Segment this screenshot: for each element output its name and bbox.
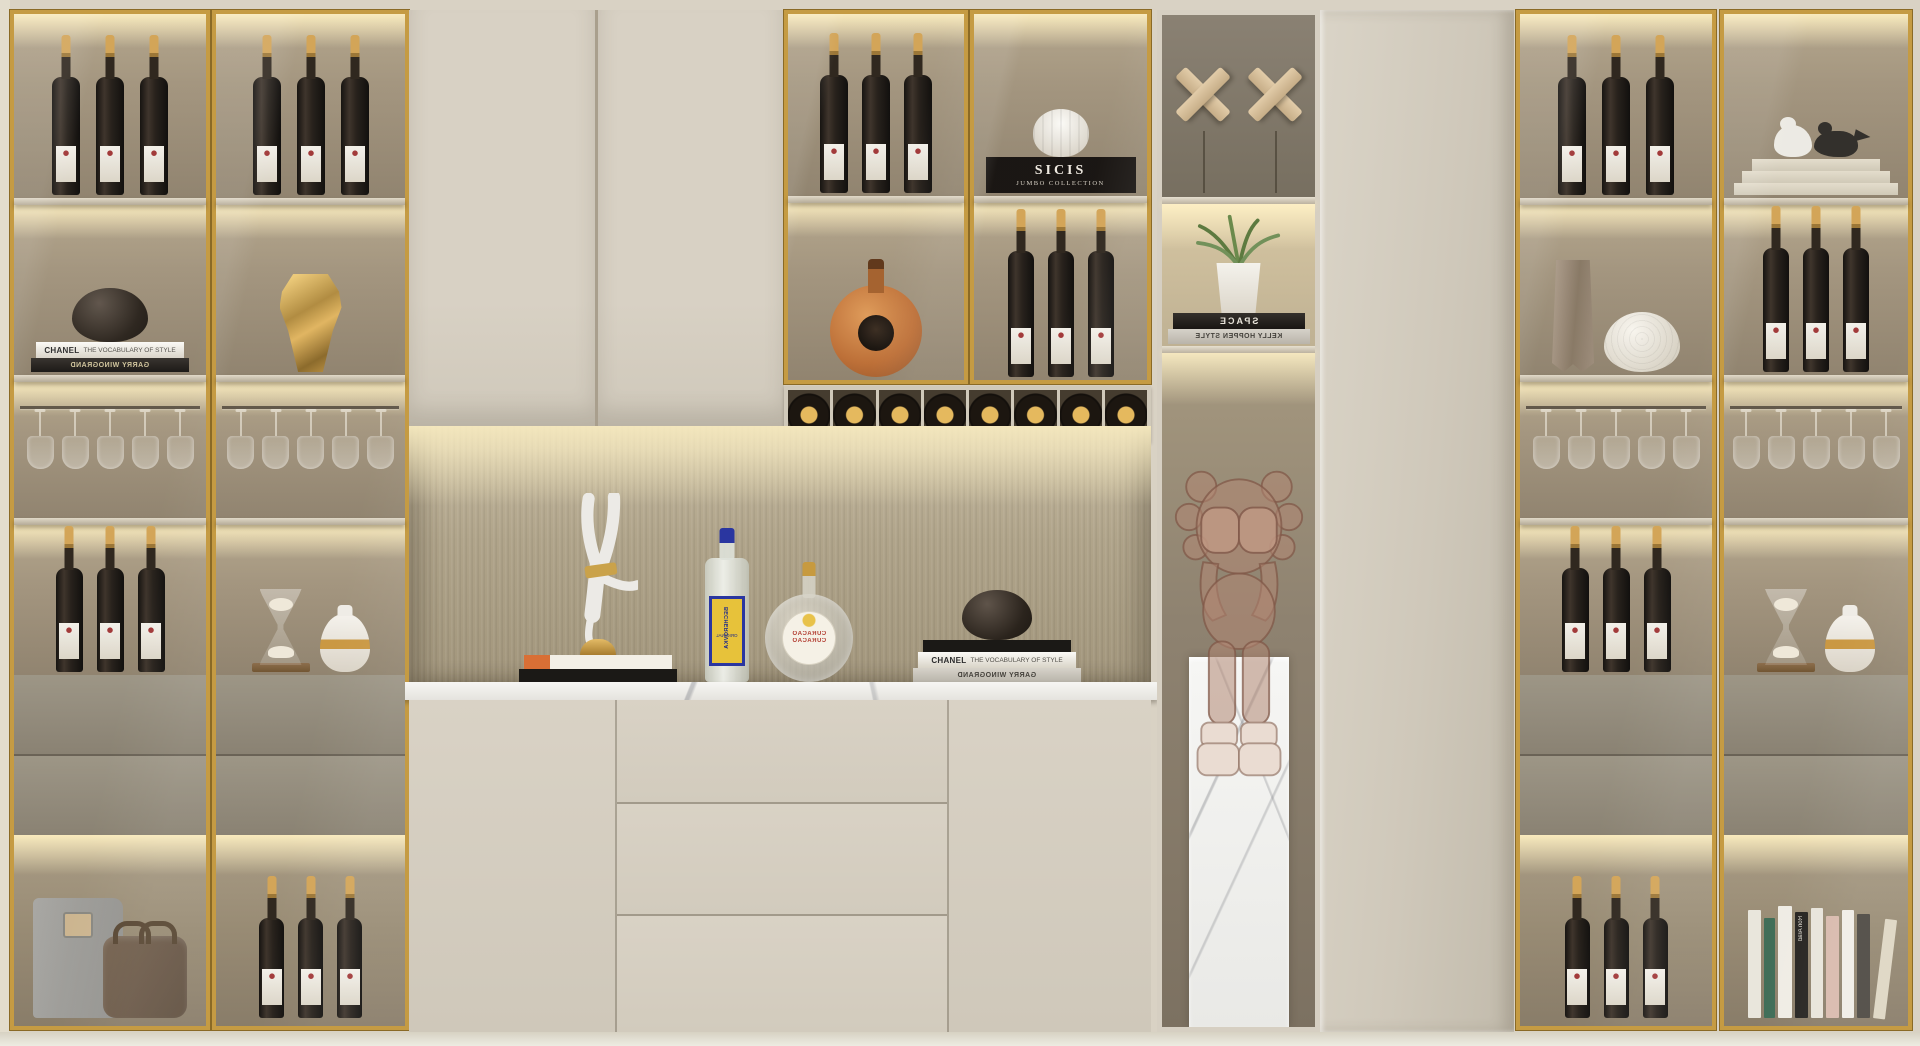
book xyxy=(1811,908,1823,1018)
base-drawer xyxy=(617,700,947,802)
book-spine-space: SPACE xyxy=(1173,313,1305,329)
dark-bowl xyxy=(962,590,1032,640)
hourglass xyxy=(252,589,310,672)
tower-shelf xyxy=(1162,346,1315,353)
wine-bottle xyxy=(820,75,848,193)
wine-bottle xyxy=(1763,248,1789,372)
drawer xyxy=(1520,675,1712,756)
wine-bottle xyxy=(56,568,83,672)
wine-glass xyxy=(1638,436,1665,469)
wine-glass xyxy=(1768,436,1795,469)
book xyxy=(1842,910,1854,1018)
drawer xyxy=(216,756,405,835)
wine-glass xyxy=(1568,436,1595,469)
travel-bag xyxy=(103,936,187,1018)
book-spine xyxy=(1734,183,1898,195)
compartment-stemware xyxy=(1520,382,1712,518)
tower-shelf xyxy=(1162,197,1315,204)
compartment-birds-books xyxy=(1724,14,1908,198)
wine-bottle xyxy=(1008,251,1034,377)
compartment-hourglass xyxy=(216,525,405,675)
wine-bottle xyxy=(1646,77,1674,195)
gymnast-figurine-group xyxy=(519,493,677,682)
wine-bottle xyxy=(341,77,369,195)
wine-bottle xyxy=(862,75,890,193)
book xyxy=(1748,910,1761,1018)
glass-cabinet-right-1 xyxy=(1516,10,1716,1030)
wall-edge xyxy=(0,0,10,1032)
book-spine-kelly-hoppen: KELLY HOPPEN STYLE xyxy=(1168,329,1310,344)
wine-bottle xyxy=(1562,568,1589,672)
base-cabinet xyxy=(409,700,1151,1032)
shelf xyxy=(1520,198,1712,205)
book xyxy=(1873,919,1897,1020)
tower-plant-compartment: SPACE KELLY HOPPEN STYLE xyxy=(1162,204,1315,346)
book-spine-garry: GARRY WINOGRAND xyxy=(913,668,1081,682)
shelf xyxy=(1724,518,1908,525)
compartment-wine xyxy=(974,203,1147,380)
wine-glass xyxy=(167,436,194,469)
compartment-wine-top xyxy=(1520,14,1712,198)
book xyxy=(1857,914,1870,1018)
white-gourd-vase xyxy=(1033,109,1089,157)
wine-bottle xyxy=(140,77,168,195)
wine-glass xyxy=(1603,436,1630,469)
book-spine-chanel: CHANEL THE VOCABULARY OF STYLE xyxy=(36,342,184,358)
drawer-stack xyxy=(1520,675,1712,835)
wine-bottle xyxy=(1565,918,1590,1018)
wine-bottle xyxy=(97,568,124,672)
cognac-bottle xyxy=(830,259,922,377)
wine-bottle xyxy=(259,918,284,1018)
black-bird-figurine xyxy=(1814,131,1858,157)
compartment-hourglass xyxy=(1724,525,1908,675)
wine-bottle xyxy=(1604,918,1629,1018)
wine-glass xyxy=(367,436,394,469)
base-drawer-stack xyxy=(617,700,947,1032)
upper-closed-doors xyxy=(409,10,784,426)
compartment-stemware xyxy=(216,382,405,518)
becherovka-label: BECHEROVKA ORIGINAL xyxy=(709,596,745,666)
drawer-stack xyxy=(14,675,206,835)
wine-bottle xyxy=(52,77,80,195)
book-spine xyxy=(923,640,1071,652)
sicis-book: SICIS JUMBO COLLECTION xyxy=(986,157,1136,193)
shelf xyxy=(216,375,405,382)
drawer-stack xyxy=(216,675,405,835)
wine-bottle xyxy=(904,75,932,193)
shelf xyxy=(1520,518,1712,525)
bronze-bowl xyxy=(72,288,148,342)
shelf xyxy=(788,196,964,203)
shelf xyxy=(14,518,206,525)
book xyxy=(1764,918,1775,1018)
glass-door-center-left xyxy=(784,10,968,384)
hobnail-vase xyxy=(1604,312,1680,372)
wine-glass xyxy=(332,436,359,469)
compartment-vases xyxy=(1520,205,1712,375)
compartment-wine-top xyxy=(216,14,405,198)
wine-glass xyxy=(227,436,254,469)
marble-countertop xyxy=(400,682,1158,700)
wine-bottle xyxy=(138,568,165,672)
wine-glass xyxy=(62,436,89,469)
book-spine-chanel: CHANEL THE VOCABULARY OF STYLE xyxy=(918,652,1076,668)
shelf xyxy=(1724,198,1908,205)
plant-on-books: SPACE KELLY HOPPEN STYLE xyxy=(1162,213,1315,344)
book xyxy=(1778,906,1792,1018)
compartment-wine xyxy=(788,14,964,196)
drawer xyxy=(1724,675,1908,756)
curacao-label: CURACAO CURACAO xyxy=(782,611,836,665)
compartment-stemware xyxy=(1724,382,1908,518)
open-shelf-tower: SPACE KELLY HOPPEN STYLE xyxy=(1157,10,1320,1032)
shelf xyxy=(14,198,206,205)
wine-bottle xyxy=(1602,77,1630,195)
lit-niche: BECHEROVKA ORIGINAL CURACAO CURACAO CHAN… xyxy=(409,426,1151,682)
cabinet-door xyxy=(598,10,784,426)
base-drawer xyxy=(617,914,947,1032)
glass-cabinet-left-1: CHANEL THE VOCABULARY OF STYLE GARRY WIN… xyxy=(10,10,210,1030)
compartment-mask xyxy=(216,205,405,375)
shelf xyxy=(974,196,1147,203)
wine-glass xyxy=(97,436,124,469)
wine-bottle xyxy=(1803,248,1829,372)
shelf xyxy=(216,198,405,205)
drawer xyxy=(216,675,405,756)
tower-top-compartment xyxy=(1162,15,1315,197)
tower-figure-compartment xyxy=(1162,353,1315,1027)
book-spine xyxy=(519,669,677,682)
glass-cabinet-right-2: Ron Arad xyxy=(1720,10,1912,1030)
compartment-wine-mid xyxy=(14,525,206,675)
handstand-figurine xyxy=(558,493,638,643)
wine-glass xyxy=(1838,436,1865,469)
compartment-bags xyxy=(14,835,206,1026)
standing-books-row: Ron Arad xyxy=(1748,906,1885,1018)
drawer xyxy=(1724,756,1908,835)
gold-mask-sculpture xyxy=(280,274,342,372)
white-bird-figurine xyxy=(1774,125,1812,157)
compartment-sicis: SICIS JUMBO COLLECTION xyxy=(974,14,1147,196)
becherovka-bottle: BECHEROVKA ORIGINAL xyxy=(705,558,749,682)
wine-bottle xyxy=(1558,77,1586,195)
compartment-stemware xyxy=(14,382,206,518)
shelf xyxy=(14,375,206,382)
base-door-right xyxy=(947,700,1151,1032)
book-spine-garry: GARRY WINOGRAND xyxy=(31,358,189,372)
wine-glass xyxy=(132,436,159,469)
wine-bottle xyxy=(1643,918,1668,1018)
book-spine xyxy=(1742,171,1890,183)
shelf xyxy=(1520,375,1712,382)
drawer-stack xyxy=(1724,675,1908,835)
bar-cabinet-scene: CHANEL THE VOCABULARY OF STYLE GARRY WIN… xyxy=(0,0,1920,1046)
wine-bottle xyxy=(297,77,325,195)
drawer xyxy=(1520,756,1712,835)
book xyxy=(1826,916,1839,1018)
book-ron-arad: Ron Arad xyxy=(1795,912,1808,1018)
book-spine xyxy=(524,655,672,669)
curacao-flask: CURACAO CURACAO xyxy=(765,562,853,682)
x-decor-stand xyxy=(1172,63,1234,193)
compartment-cognac xyxy=(788,203,964,380)
wine-bottle xyxy=(298,918,323,1018)
compartment-wine-mid xyxy=(1520,525,1712,675)
drawer xyxy=(14,756,206,835)
wine-glass xyxy=(1733,436,1760,469)
wine-glass xyxy=(1673,436,1700,469)
base-drawer xyxy=(617,802,947,914)
wine-glass xyxy=(1803,436,1830,469)
vase-on-book: SICIS JUMBO COLLECTION xyxy=(986,109,1136,193)
wine-glass xyxy=(262,436,289,469)
shelf xyxy=(1724,375,1908,382)
white-plant-pot xyxy=(1214,263,1264,313)
hourglass xyxy=(1757,589,1815,672)
tall-taupe-vase xyxy=(1552,260,1594,372)
tall-closed-cabinet xyxy=(1320,10,1514,1032)
wine-bottle xyxy=(253,77,281,195)
book-spine xyxy=(1752,159,1880,171)
glass-door-center-right: SICIS JUMBO COLLECTION xyxy=(970,10,1151,384)
plant-leaves xyxy=(1189,213,1289,269)
birds-on-books xyxy=(1734,125,1898,195)
wine-bottle xyxy=(1088,251,1114,377)
compartment-decor: CHANEL THE VOCABULARY OF STYLE GARRY WIN… xyxy=(14,205,206,375)
drawer xyxy=(14,675,206,756)
base-door-left xyxy=(409,700,617,1032)
wine-glass xyxy=(1533,436,1560,469)
x-decor-stand xyxy=(1244,63,1306,193)
compartment-books: Ron Arad xyxy=(1724,835,1908,1026)
wine-glass xyxy=(27,436,54,469)
floor xyxy=(0,1032,1920,1046)
wine-bottle xyxy=(1048,251,1074,377)
wine-bottle xyxy=(1843,248,1869,372)
compartment-wine-bottom xyxy=(216,835,405,1026)
bowl-on-books: CHANEL THE VOCABULARY OF STYLE GARRY WIN… xyxy=(913,590,1081,682)
shelf xyxy=(216,518,405,525)
wine-bottle xyxy=(1603,568,1630,672)
compartment-wine-top xyxy=(14,14,206,198)
rose-glass-figure xyxy=(1173,452,1305,812)
wine-bottle xyxy=(337,918,362,1018)
wine-bottle xyxy=(1644,568,1671,672)
wine-bottle xyxy=(96,77,124,195)
wine-glass xyxy=(297,436,324,469)
gold-band-vase xyxy=(320,614,370,672)
bowl-on-books: CHANEL THE VOCABULARY OF STYLE GARRY WIN… xyxy=(31,288,189,372)
glass-cabinet-left-2 xyxy=(212,10,409,1030)
cabinet-door xyxy=(409,10,595,426)
wine-glass xyxy=(1873,436,1900,469)
gold-band-vase xyxy=(1825,614,1875,672)
compartment-wine-bottom xyxy=(1520,835,1712,1026)
compartment-wine xyxy=(1724,205,1908,375)
